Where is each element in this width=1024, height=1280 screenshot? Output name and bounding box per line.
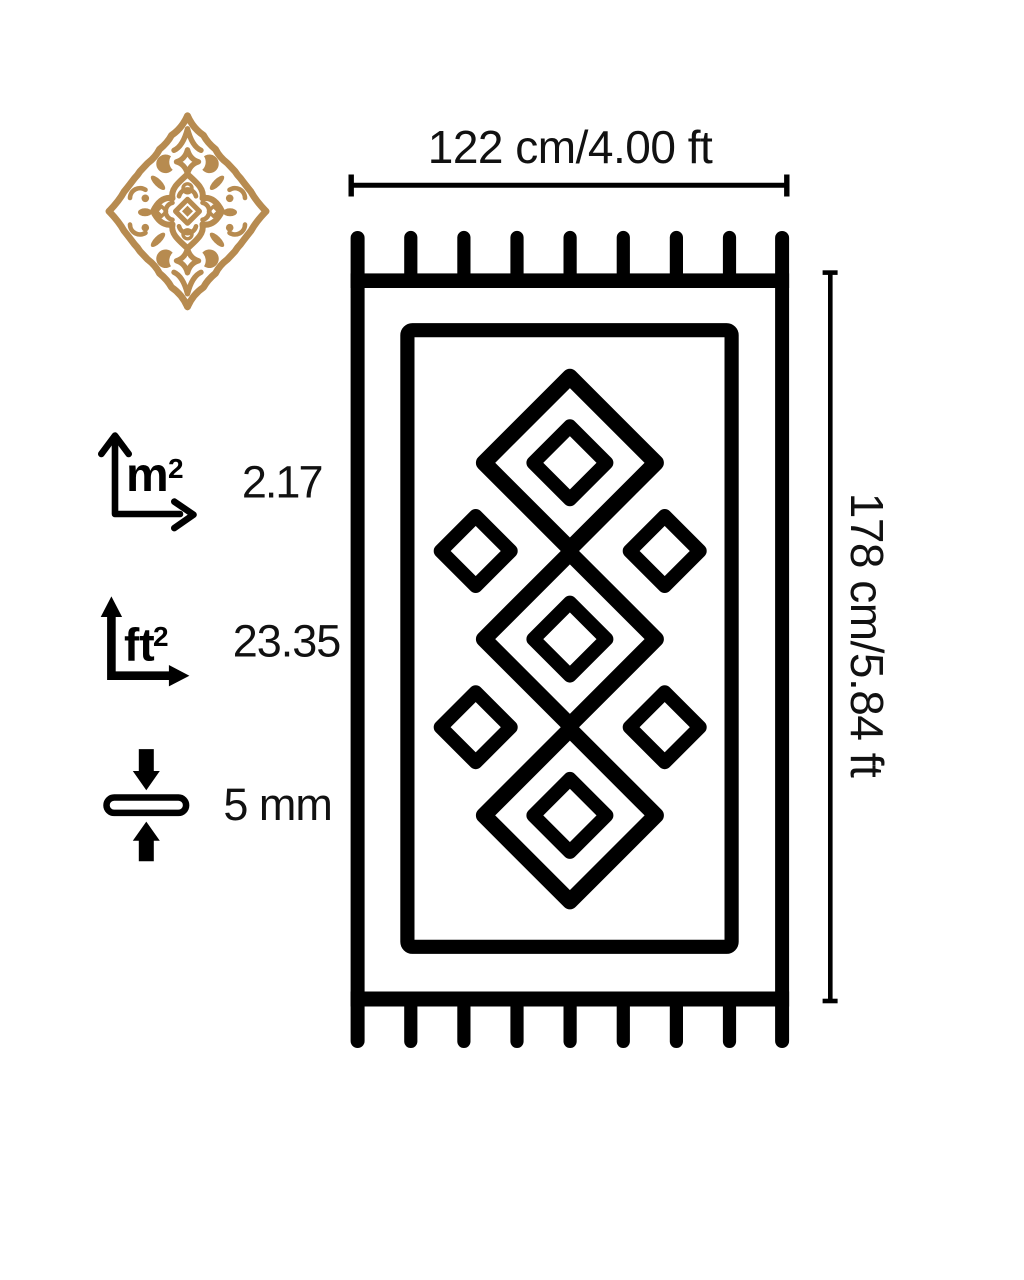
svg-text:2: 2 bbox=[153, 621, 169, 652]
svg-text:122 cm/4.00 ft: 122 cm/4.00 ft bbox=[428, 121, 713, 173]
svg-text:m: m bbox=[126, 449, 169, 502]
svg-text:ft: ft bbox=[124, 619, 155, 671]
svg-text:178 cm/5.84 ft: 178 cm/5.84 ft bbox=[841, 493, 893, 778]
svg-text:2: 2 bbox=[168, 453, 184, 484]
svg-text:5 mm: 5 mm bbox=[223, 779, 332, 830]
svg-text:23.35: 23.35 bbox=[233, 616, 341, 667]
svg-text:2.17: 2.17 bbox=[242, 457, 322, 508]
